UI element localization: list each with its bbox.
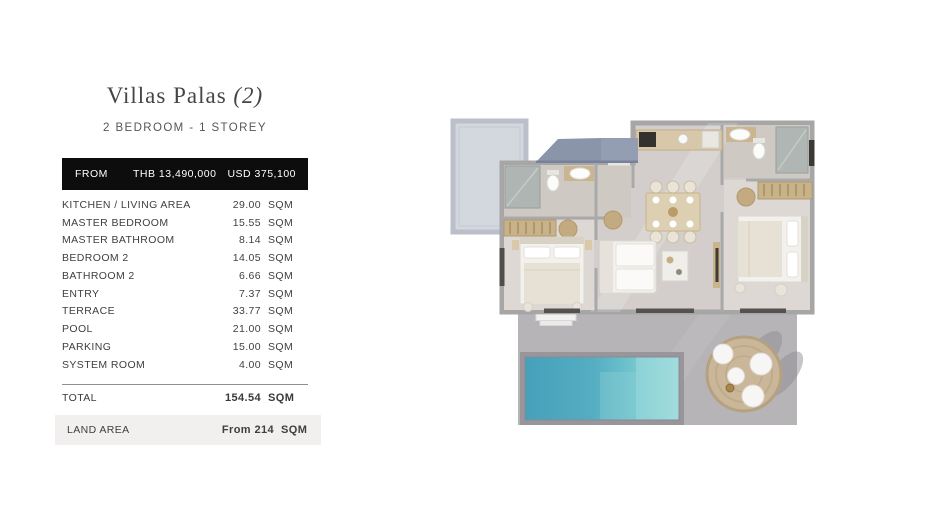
total-row: TOTAL 154.54SQM — [62, 385, 308, 412]
area-value: 15.00SQM — [215, 341, 298, 353]
area-label: TERRACE — [62, 305, 115, 317]
area-number: 15.55 — [215, 217, 261, 229]
area-unit: SQM — [268, 305, 298, 317]
subtitle: 2 BEDROOM - 1 STOREY — [62, 122, 308, 134]
area-number: 8.14 — [215, 234, 261, 246]
title-main: Villas Palas — [107, 83, 227, 108]
area-unit: SQM — [268, 217, 298, 229]
master-rug — [559, 220, 577, 238]
price-thb: THB 13,490,000 — [133, 168, 216, 180]
dining-set — [646, 181, 700, 243]
entry-steps — [536, 315, 576, 326]
area-label: PARKING — [62, 341, 111, 353]
area-unit: SQM — [268, 359, 298, 371]
area-label: MASTER BEDROOM — [62, 217, 169, 229]
area-unit: SQM — [268, 323, 298, 335]
area-unit: SQM — [268, 288, 298, 300]
area-value: 8.14SQM — [215, 234, 298, 246]
total-label: TOTAL — [62, 392, 97, 404]
area-value: 4.00SQM — [215, 359, 298, 371]
area-row: MASTER BEDROOM 15.55SQM — [62, 214, 308, 232]
land-area-label: LAND AREA — [67, 424, 130, 436]
land-area-row: LAND AREA From 214SQM — [55, 415, 321, 445]
area-number: 21.00 — [215, 323, 261, 335]
area-value: 15.55SQM — [215, 217, 298, 229]
area-row: TERRACE 33.77SQM — [62, 303, 308, 321]
area-row: SYSTEM ROOM 4.00SQM — [62, 356, 308, 374]
villa-info-panel: Villas Palas (2) 2 BEDROOM - 1 STOREY FR… — [62, 84, 308, 445]
area-unit: SQM — [268, 341, 298, 353]
price-usd: USD 375,100 — [227, 168, 296, 180]
area-number: 15.00 — [215, 341, 261, 353]
tv-console — [713, 242, 720, 288]
price-values: THB 13,490,000USD 375,100 — [133, 168, 296, 180]
kitchen-counter — [636, 130, 722, 150]
area-unit: SQM — [268, 252, 298, 264]
area-unit: SQM — [268, 199, 298, 211]
area-label: BATHROOM 2 — [62, 270, 135, 282]
area-number: 4.00 — [215, 359, 261, 371]
area-row: BEDROOM 2 14.05SQM — [62, 249, 308, 267]
price-from-label: FROM — [75, 168, 108, 180]
area-number: 6.66 — [215, 270, 261, 282]
area-unit: SQM — [268, 270, 298, 282]
coffee-table — [662, 251, 688, 281]
bedroom2-wardrobe — [758, 182, 812, 199]
area-row: BATHROOM 2 6.66SQM — [62, 267, 308, 285]
page: Villas Palas (2) 2 BEDROOM - 1 STOREY FR… — [0, 0, 942, 522]
carport-roof — [536, 138, 638, 163]
area-value: 29.00SQM — [215, 199, 298, 211]
land-area-unit: SQM — [281, 424, 311, 436]
land-area-number: From 214 — [212, 424, 274, 436]
area-number: 33.77 — [215, 305, 261, 317]
area-number: 29.00 — [215, 199, 261, 211]
area-value: 6.66SQM — [215, 270, 298, 282]
area-label: MASTER BATHROOM — [62, 234, 175, 246]
area-label: BEDROOM 2 — [62, 252, 129, 264]
area-label: POOL — [62, 323, 93, 335]
area-label: SYSTEM ROOM — [62, 359, 145, 371]
area-value: 14.05SQM — [215, 252, 298, 264]
area-value: 7.37SQM — [215, 288, 298, 300]
area-number: 7.37 — [215, 288, 261, 300]
area-value: 33.77SQM — [215, 305, 298, 317]
area-row: POOL 21.00SQM — [62, 320, 308, 338]
area-label: KITCHEN / LIVING AREA — [62, 199, 191, 211]
land-area-value: From 214SQM — [212, 424, 311, 436]
pool — [520, 352, 684, 425]
page-title: Villas Palas (2) — [62, 84, 308, 107]
total-value: 154.54SQM — [215, 392, 298, 404]
area-row: MASTER BATHROOM 8.14SQM — [62, 232, 308, 250]
master-wardrobe — [504, 220, 556, 236]
area-row: ENTRY 7.37SQM — [62, 285, 308, 303]
area-row: PARKING 15.00SQM — [62, 338, 308, 356]
area-number: 14.05 — [215, 252, 261, 264]
sofa — [600, 241, 656, 293]
master-bed — [512, 237, 592, 312]
area-row: KITCHEN / LIVING AREA 29.00SQM — [62, 196, 308, 214]
area-table: KITCHEN / LIVING AREA 29.00SQM MASTER BE… — [62, 196, 308, 445]
total-unit: SQM — [268, 392, 298, 404]
floor-plan — [440, 100, 850, 445]
area-value: 21.00SQM — [215, 323, 298, 335]
total-number: 154.54 — [215, 392, 261, 404]
price-bar: FROM THB 13,490,000USD 375,100 — [62, 158, 308, 190]
floor-plan-svg — [440, 100, 850, 445]
area-unit: SQM — [268, 234, 298, 246]
entry-rug — [604, 211, 622, 229]
bathroom2-window — [809, 140, 815, 166]
bedroom2-rug — [737, 188, 755, 206]
title-suffix: (2) — [233, 83, 263, 108]
area-label: ENTRY — [62, 288, 99, 300]
